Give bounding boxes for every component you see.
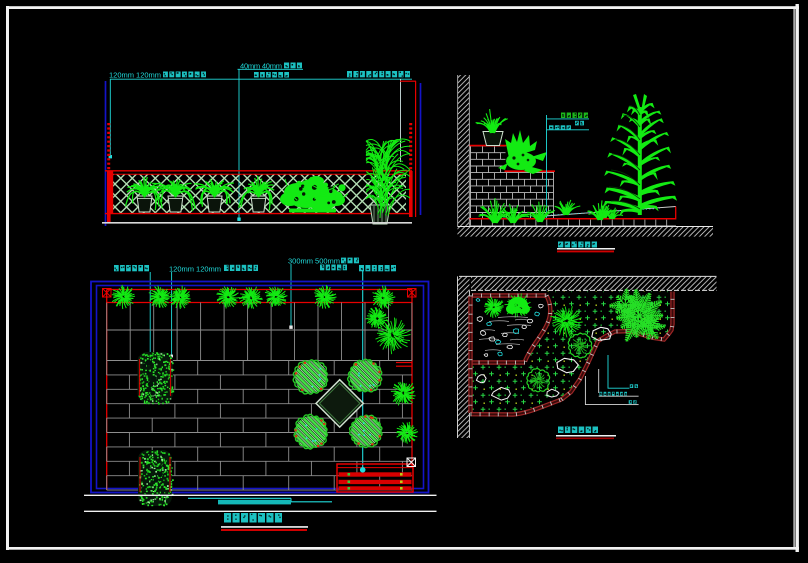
- svg-text:120mm 120mm: 120mm 120mm: [169, 264, 221, 273]
- svg-text:300mm 500mm: 300mm 500mm: [288, 256, 340, 265]
- svg-text:120mm 120mm: 120mm 120mm: [109, 71, 161, 80]
